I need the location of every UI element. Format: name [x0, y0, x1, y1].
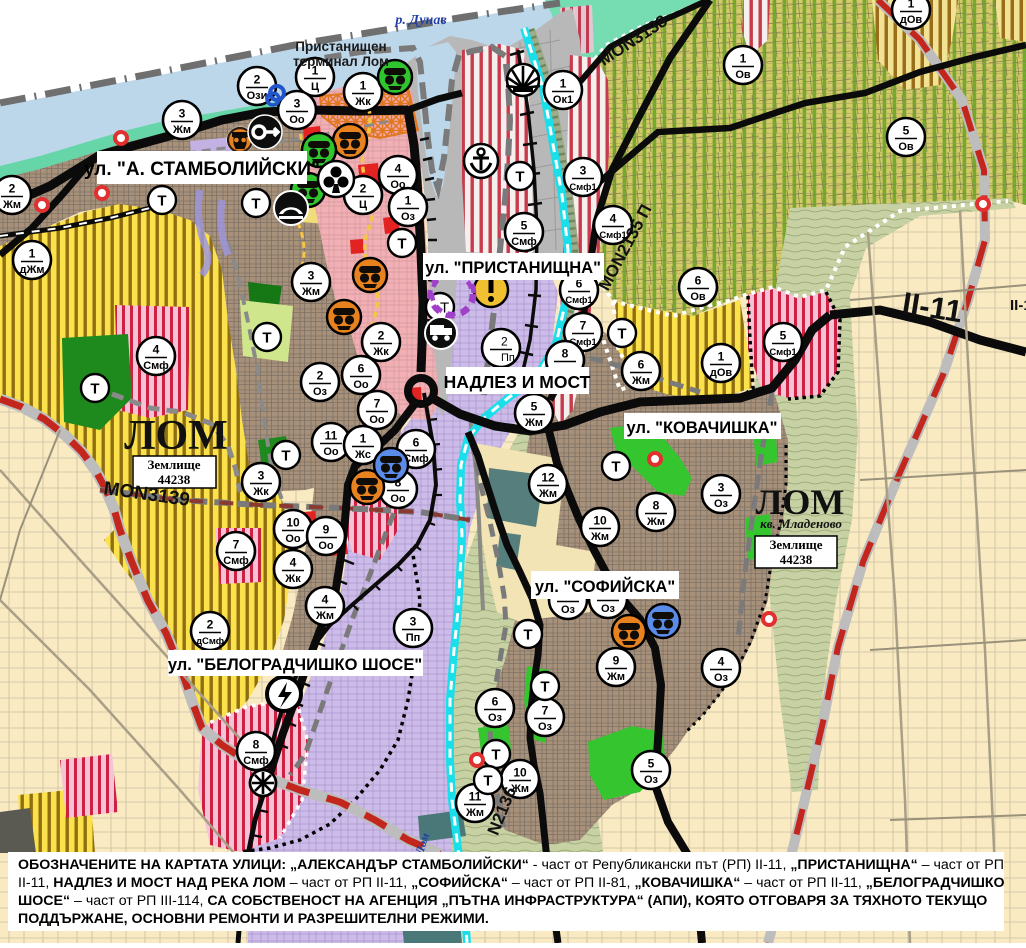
- svg-text:Жм: Жм: [631, 375, 650, 387]
- svg-text:Т: Т: [262, 330, 271, 347]
- svg-text:терминал Лом: терминал Лом: [293, 54, 389, 69]
- svg-text:12: 12: [541, 471, 555, 485]
- svg-text:4: 4: [290, 556, 297, 570]
- svg-text:Оо: Оо: [318, 540, 334, 552]
- svg-text:дЖм: дЖм: [19, 264, 44, 276]
- svg-text:Т: Т: [491, 747, 500, 764]
- svg-text:ЛОМ: ЛОМ: [124, 413, 228, 459]
- svg-text:ОБОЗНАЧЕНИТЕ НА КАРТАТА УЛИЦИ:: ОБОЗНАЧЕНИТЕ НА КАРТАТА УЛИЦИ: „АЛЕКСАНД…: [18, 855, 1004, 873]
- svg-text:Жк: Жк: [284, 573, 301, 585]
- svg-text:2: 2: [317, 369, 324, 383]
- svg-text:Землище: Землище: [147, 457, 200, 472]
- svg-text:Пристанищен: Пристанищен: [295, 39, 386, 54]
- svg-text:Ов: Ов: [898, 141, 914, 153]
- svg-text:дОв: дОв: [710, 367, 733, 379]
- svg-text:3: 3: [294, 97, 301, 111]
- svg-text:Оз: Оз: [714, 498, 729, 510]
- svg-text:Жм: Жм: [172, 124, 191, 136]
- svg-text:Смф: Смф: [143, 360, 169, 372]
- svg-text:кв. Младеново: кв. Младеново: [760, 516, 842, 531]
- svg-text:1: 1: [360, 432, 367, 446]
- svg-text:1: 1: [405, 194, 412, 208]
- svg-text:ул. "СОФИЙСКА": ул. "СОФИЙСКА": [535, 577, 675, 596]
- svg-text:3: 3: [258, 469, 265, 483]
- svg-text:44238: 44238: [158, 472, 191, 487]
- svg-text:6: 6: [358, 362, 365, 376]
- svg-text:5: 5: [780, 329, 787, 343]
- svg-text:Смф1: Смф1: [569, 182, 597, 193]
- svg-text:ШОСЕ“ – част от РП III-114, СА: ШОСЕ“ – част от РП III-114, СА СОБСТВЕНО…: [18, 893, 987, 909]
- svg-text:Т: Т: [611, 459, 620, 476]
- svg-text:10: 10: [286, 516, 300, 530]
- svg-text:2: 2: [360, 182, 367, 196]
- svg-text:4: 4: [718, 655, 725, 669]
- svg-text:Оз: Оз: [401, 211, 416, 223]
- svg-text:Жм: Жм: [538, 488, 557, 500]
- svg-text:Смф: Смф: [223, 555, 249, 567]
- svg-text:8: 8: [562, 347, 569, 361]
- svg-text:3: 3: [410, 615, 417, 629]
- svg-text:Жм: Жм: [606, 671, 625, 683]
- svg-text:II-11, НАДЛЕЗ И МОСТ НАД РЕКА: II-11, НАДЛЕЗ И МОСТ НАД РЕКА ЛОМ – част…: [18, 873, 1005, 891]
- svg-text:Ов: Ов: [690, 291, 706, 303]
- svg-text:II-11: II-11: [1010, 297, 1026, 314]
- svg-text:Смф1: Смф1: [565, 295, 593, 306]
- svg-text:9: 9: [323, 523, 330, 537]
- svg-text:Т: Т: [157, 193, 166, 210]
- svg-text:1: 1: [560, 77, 567, 91]
- svg-text:2: 2: [378, 329, 385, 343]
- svg-text:Жм: Жм: [301, 286, 320, 298]
- svg-text:7: 7: [580, 319, 587, 333]
- svg-text:1: 1: [908, 0, 915, 11]
- svg-text:2: 2: [207, 618, 214, 632]
- svg-text:7: 7: [542, 704, 549, 718]
- svg-text:Жк: Жк: [372, 346, 389, 358]
- svg-text:1: 1: [360, 79, 367, 93]
- svg-text:Пп: Пп: [501, 352, 515, 364]
- svg-text:5: 5: [648, 757, 655, 771]
- svg-text:10: 10: [513, 766, 527, 780]
- svg-text:Оо: Оо: [289, 114, 305, 126]
- svg-text:5: 5: [531, 400, 538, 414]
- svg-text:4: 4: [395, 162, 402, 176]
- svg-text:Жм: Жм: [590, 531, 609, 543]
- svg-text:Оз: Оз: [714, 672, 729, 684]
- svg-text:6: 6: [695, 274, 702, 288]
- svg-text:Ок1: Ок1: [553, 94, 573, 106]
- svg-text:5: 5: [903, 124, 910, 138]
- svg-text:дОв: дОв: [900, 14, 923, 26]
- svg-text:НАДЛЕЗ И МОСТ: НАДЛЕЗ И МОСТ: [444, 372, 591, 392]
- svg-text:Т: Т: [397, 236, 406, 253]
- svg-text:Оз: Оз: [538, 721, 553, 733]
- svg-text:11: 11: [325, 429, 338, 443]
- svg-text:Т: Т: [281, 448, 290, 465]
- svg-text:9: 9: [613, 654, 620, 668]
- svg-text:Оо: Оо: [390, 493, 406, 505]
- svg-text:Т: Т: [483, 773, 492, 790]
- svg-text:6: 6: [638, 358, 645, 372]
- svg-text:ул. "КОВАЧИШКА": ул. "КОВАЧИШКА": [627, 419, 778, 437]
- svg-text:Т: Т: [540, 679, 549, 696]
- svg-text:7: 7: [233, 538, 240, 552]
- svg-text:Ц: Ц: [359, 199, 367, 211]
- svg-text:Жм: Жм: [646, 516, 665, 528]
- svg-text:Оз: Оз: [488, 712, 503, 724]
- svg-text:Оз: Оз: [561, 604, 576, 616]
- svg-text:1: 1: [29, 247, 36, 261]
- svg-text:4: 4: [610, 212, 617, 226]
- svg-text:Т: Т: [251, 196, 260, 213]
- svg-text:4: 4: [322, 593, 329, 607]
- svg-text:3: 3: [580, 164, 587, 178]
- svg-text:3: 3: [179, 107, 186, 121]
- svg-text:Жм: Жм: [524, 417, 543, 429]
- svg-text:ул. "А. СТАМБОЛИЙСКИ": ул. "А. СТАМБОЛИЙСКИ": [84, 158, 320, 180]
- svg-text:Оо: Оо: [285, 533, 301, 545]
- svg-text:1: 1: [740, 52, 747, 66]
- svg-text:6: 6: [492, 695, 499, 709]
- svg-text:Т: Т: [515, 169, 524, 186]
- svg-text:Оз: Оз: [601, 603, 616, 615]
- svg-text:Оо: Оо: [353, 379, 369, 391]
- svg-text:Т: Т: [617, 326, 626, 343]
- svg-text:ул. "ПРИСТАНИЩНА": ул. "ПРИСТАНИЩНА": [425, 259, 601, 277]
- svg-text:дСмф: дСмф: [196, 636, 224, 647]
- svg-text:Жм: Жм: [2, 199, 21, 211]
- svg-text:ПОДДЪРЖАНЕ, ОСНОВНИ РЕМОНТИ И: ПОДДЪРЖАНЕ, ОСНОВНИ РЕМОНТИ И РАЗРЕШИТЕЛ…: [18, 911, 489, 927]
- svg-text:Жс: Жс: [354, 449, 371, 461]
- svg-text:Ози: Ози: [247, 90, 268, 102]
- svg-text:2: 2: [501, 335, 508, 349]
- svg-text:2: 2: [9, 182, 16, 196]
- svg-text:Землище: Землище: [769, 537, 822, 552]
- svg-text:Ц: Ц: [311, 81, 319, 93]
- svg-text:1: 1: [718, 350, 725, 364]
- svg-text:Смф1: Смф1: [769, 347, 797, 358]
- svg-text:Смф: Смф: [243, 755, 269, 767]
- svg-text:2: 2: [254, 73, 261, 87]
- svg-text:10: 10: [593, 514, 607, 528]
- svg-text:р. Дунав: р. Дунав: [394, 13, 447, 28]
- svg-text:4: 4: [153, 343, 160, 357]
- svg-text:Жм: Жм: [465, 807, 484, 819]
- svg-text:Т: Т: [90, 381, 99, 398]
- svg-text:3: 3: [718, 481, 725, 495]
- svg-text:Т: Т: [523, 627, 532, 644]
- svg-text:44238: 44238: [780, 552, 813, 567]
- svg-text:6: 6: [413, 436, 420, 450]
- svg-text:Жм: Жм: [315, 610, 334, 622]
- svg-text:3: 3: [308, 269, 315, 283]
- svg-text:7: 7: [374, 397, 381, 411]
- svg-text:Жк: Жк: [354, 96, 371, 108]
- svg-text:5: 5: [521, 219, 528, 233]
- svg-text:8: 8: [253, 738, 260, 752]
- svg-text:Оз: Оз: [313, 386, 328, 398]
- svg-text:Жк: Жк: [252, 486, 269, 498]
- svg-text:8: 8: [653, 499, 660, 513]
- svg-text:Оо: Оо: [323, 446, 339, 458]
- svg-text:Оз: Оз: [644, 774, 659, 786]
- svg-text:Оо: Оо: [369, 414, 385, 426]
- svg-text:Смф: Смф: [511, 236, 537, 248]
- svg-text:ул. "БЕЛОГРАДЧИШКО ШОСЕ": ул. "БЕЛОГРАДЧИШКО ШОСЕ": [168, 656, 422, 674]
- svg-text:Ов: Ов: [735, 69, 751, 81]
- svg-text:Пп: Пп: [406, 632, 421, 644]
